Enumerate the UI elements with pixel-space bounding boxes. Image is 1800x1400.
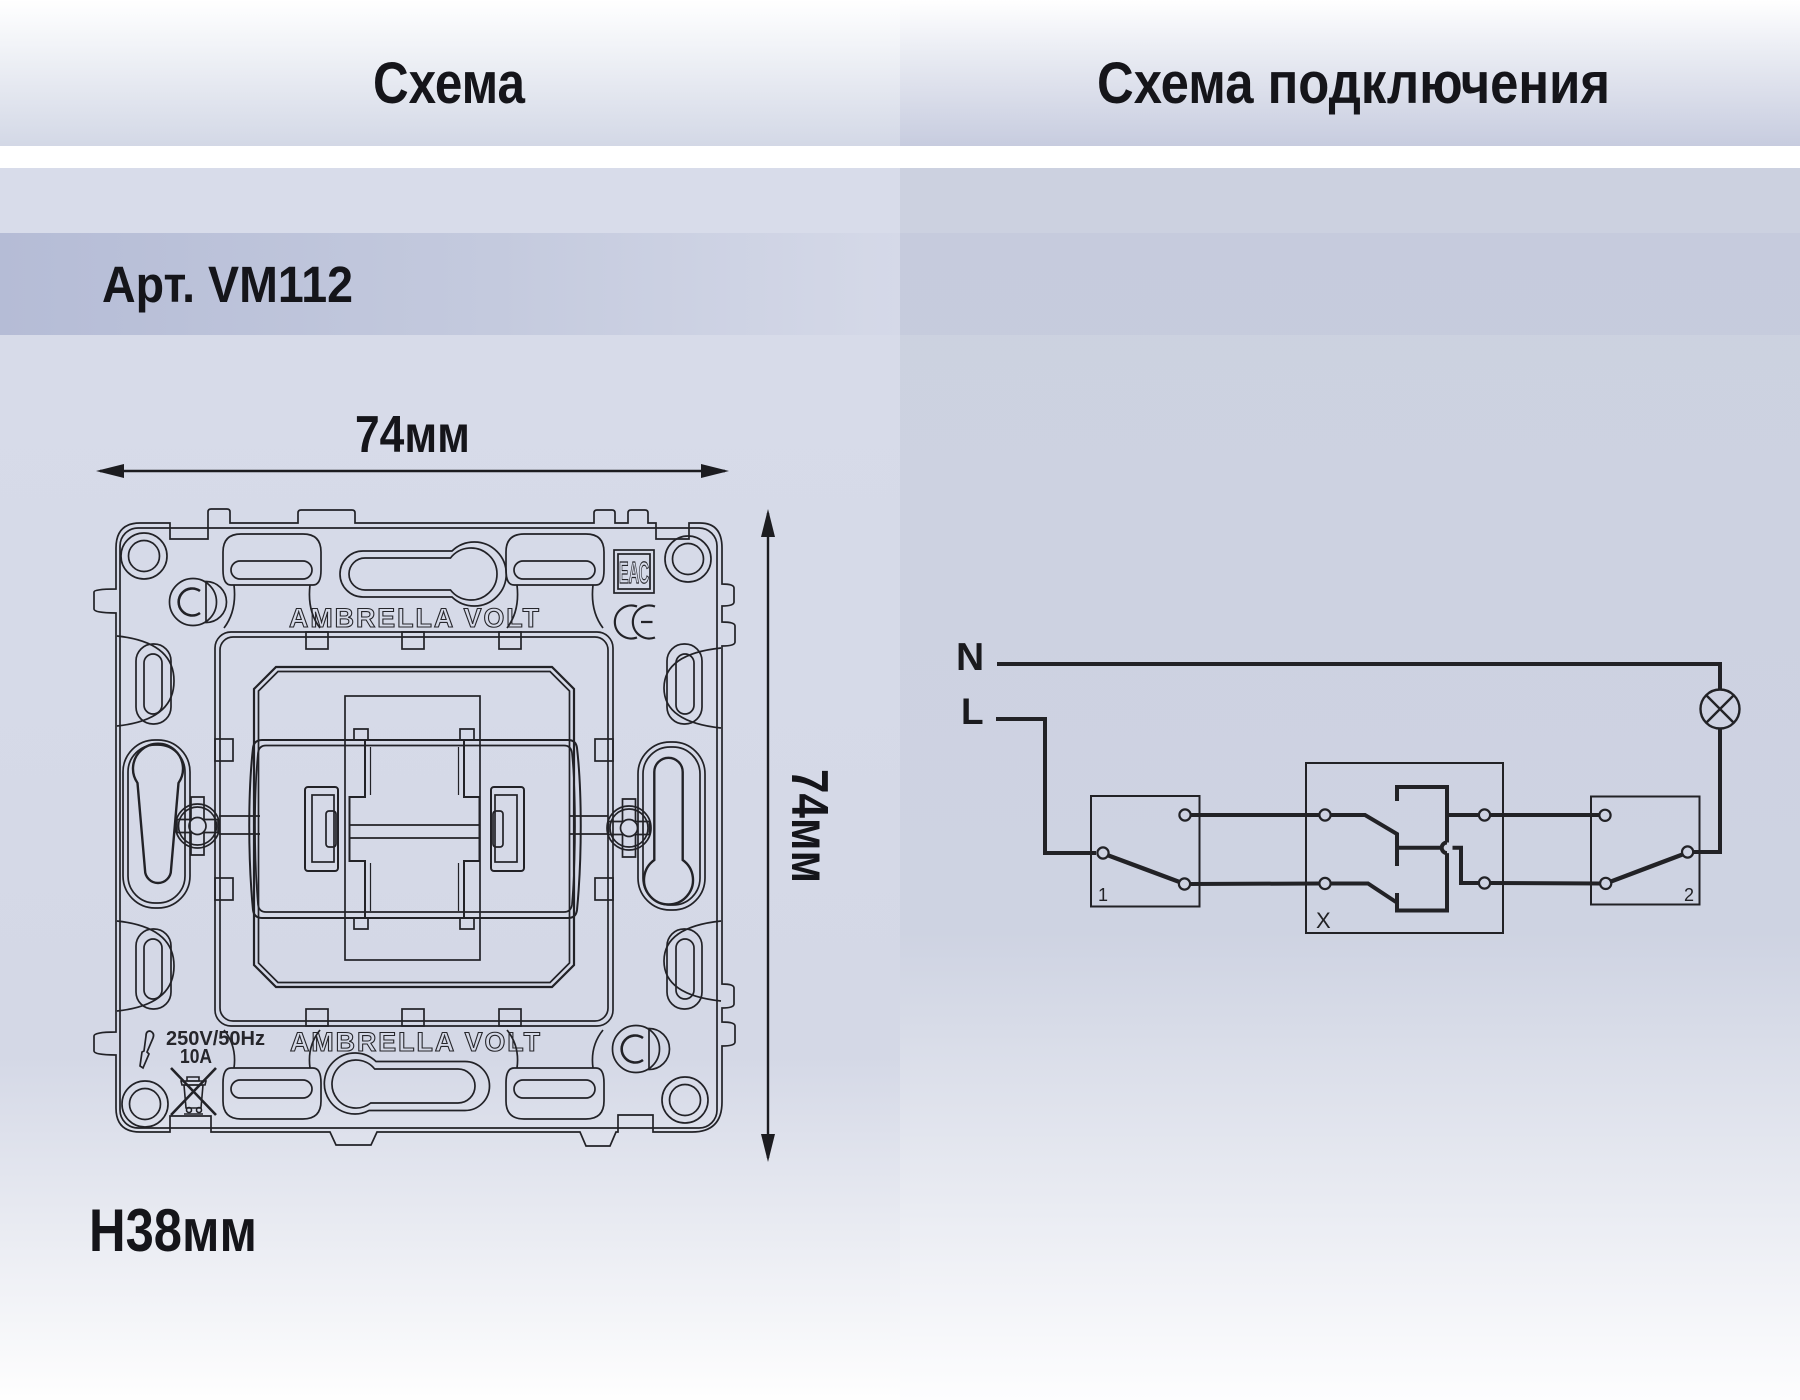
svg-text:74мм: 74мм xyxy=(355,406,470,464)
svg-text:10A: 10A xyxy=(180,1046,212,1068)
svg-text:2: 2 xyxy=(1684,885,1694,905)
svg-text:AMBRELLA VOLT: AMBRELLA VOLT xyxy=(289,603,541,633)
svg-text:L: L xyxy=(961,691,984,732)
svg-text:N: N xyxy=(956,636,984,679)
svg-text:Н38мм: Н38мм xyxy=(89,1197,257,1264)
svg-text:Схема: Схема xyxy=(373,51,526,116)
svg-text:X: X xyxy=(1316,908,1331,933)
svg-text:74мм: 74мм xyxy=(780,769,838,883)
svg-text:ЕАС: ЕАС xyxy=(619,555,649,590)
svg-text:AMBRELLA VOLT: AMBRELLA VOLT xyxy=(290,1027,542,1057)
svg-text:Схема подключения: Схема подключения xyxy=(1097,51,1610,116)
svg-text:Арт. VM112: Арт. VM112 xyxy=(102,256,353,313)
svg-text:1: 1 xyxy=(1098,885,1108,905)
